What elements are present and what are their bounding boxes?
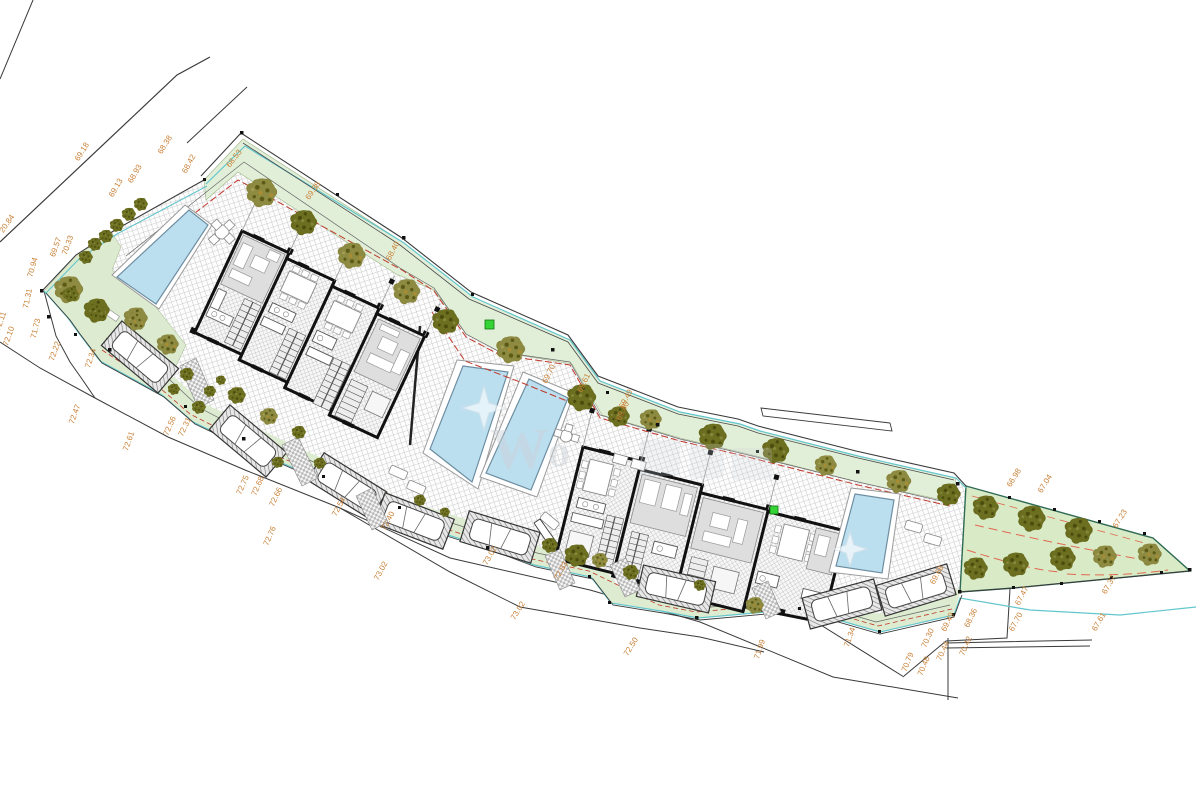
svg-text:W: W <box>490 416 548 481</box>
svg-text:o: o <box>548 427 570 476</box>
